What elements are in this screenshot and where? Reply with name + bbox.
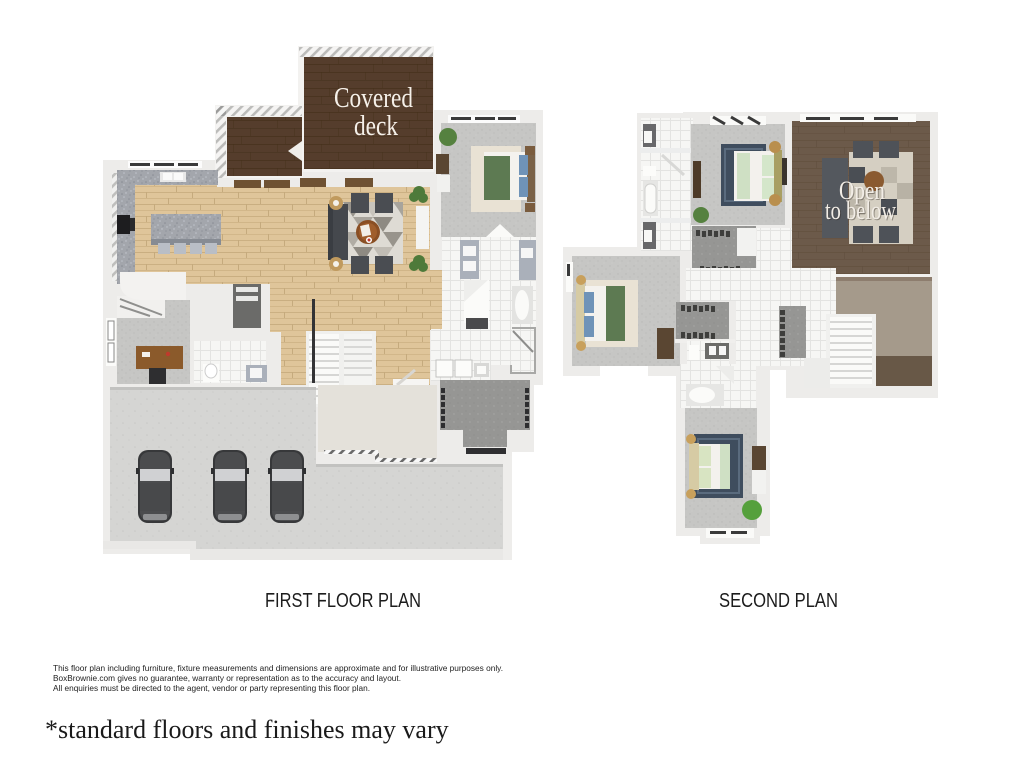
svg-text:BoxBrownie.com gives no guaran: BoxBrownie.com gives no guarantee, warra… [53, 673, 401, 683]
svg-text:to below: to below [825, 196, 896, 225]
svg-text:All enquiries must be directed: All enquiries must be directed to the ag… [53, 683, 370, 693]
svg-text:FIRST FLOOR PLAN: FIRST FLOOR PLAN [265, 590, 421, 612]
svg-text:Covered: Covered [334, 83, 413, 114]
svg-text:SECOND PLAN: SECOND PLAN [719, 590, 838, 612]
svg-text:This floor plan including furn: This floor plan including furniture, fix… [53, 663, 503, 673]
svg-text:deck: deck [354, 111, 398, 142]
svg-text:*standard floors and finishes: *standard floors and finishes may vary [45, 715, 449, 744]
